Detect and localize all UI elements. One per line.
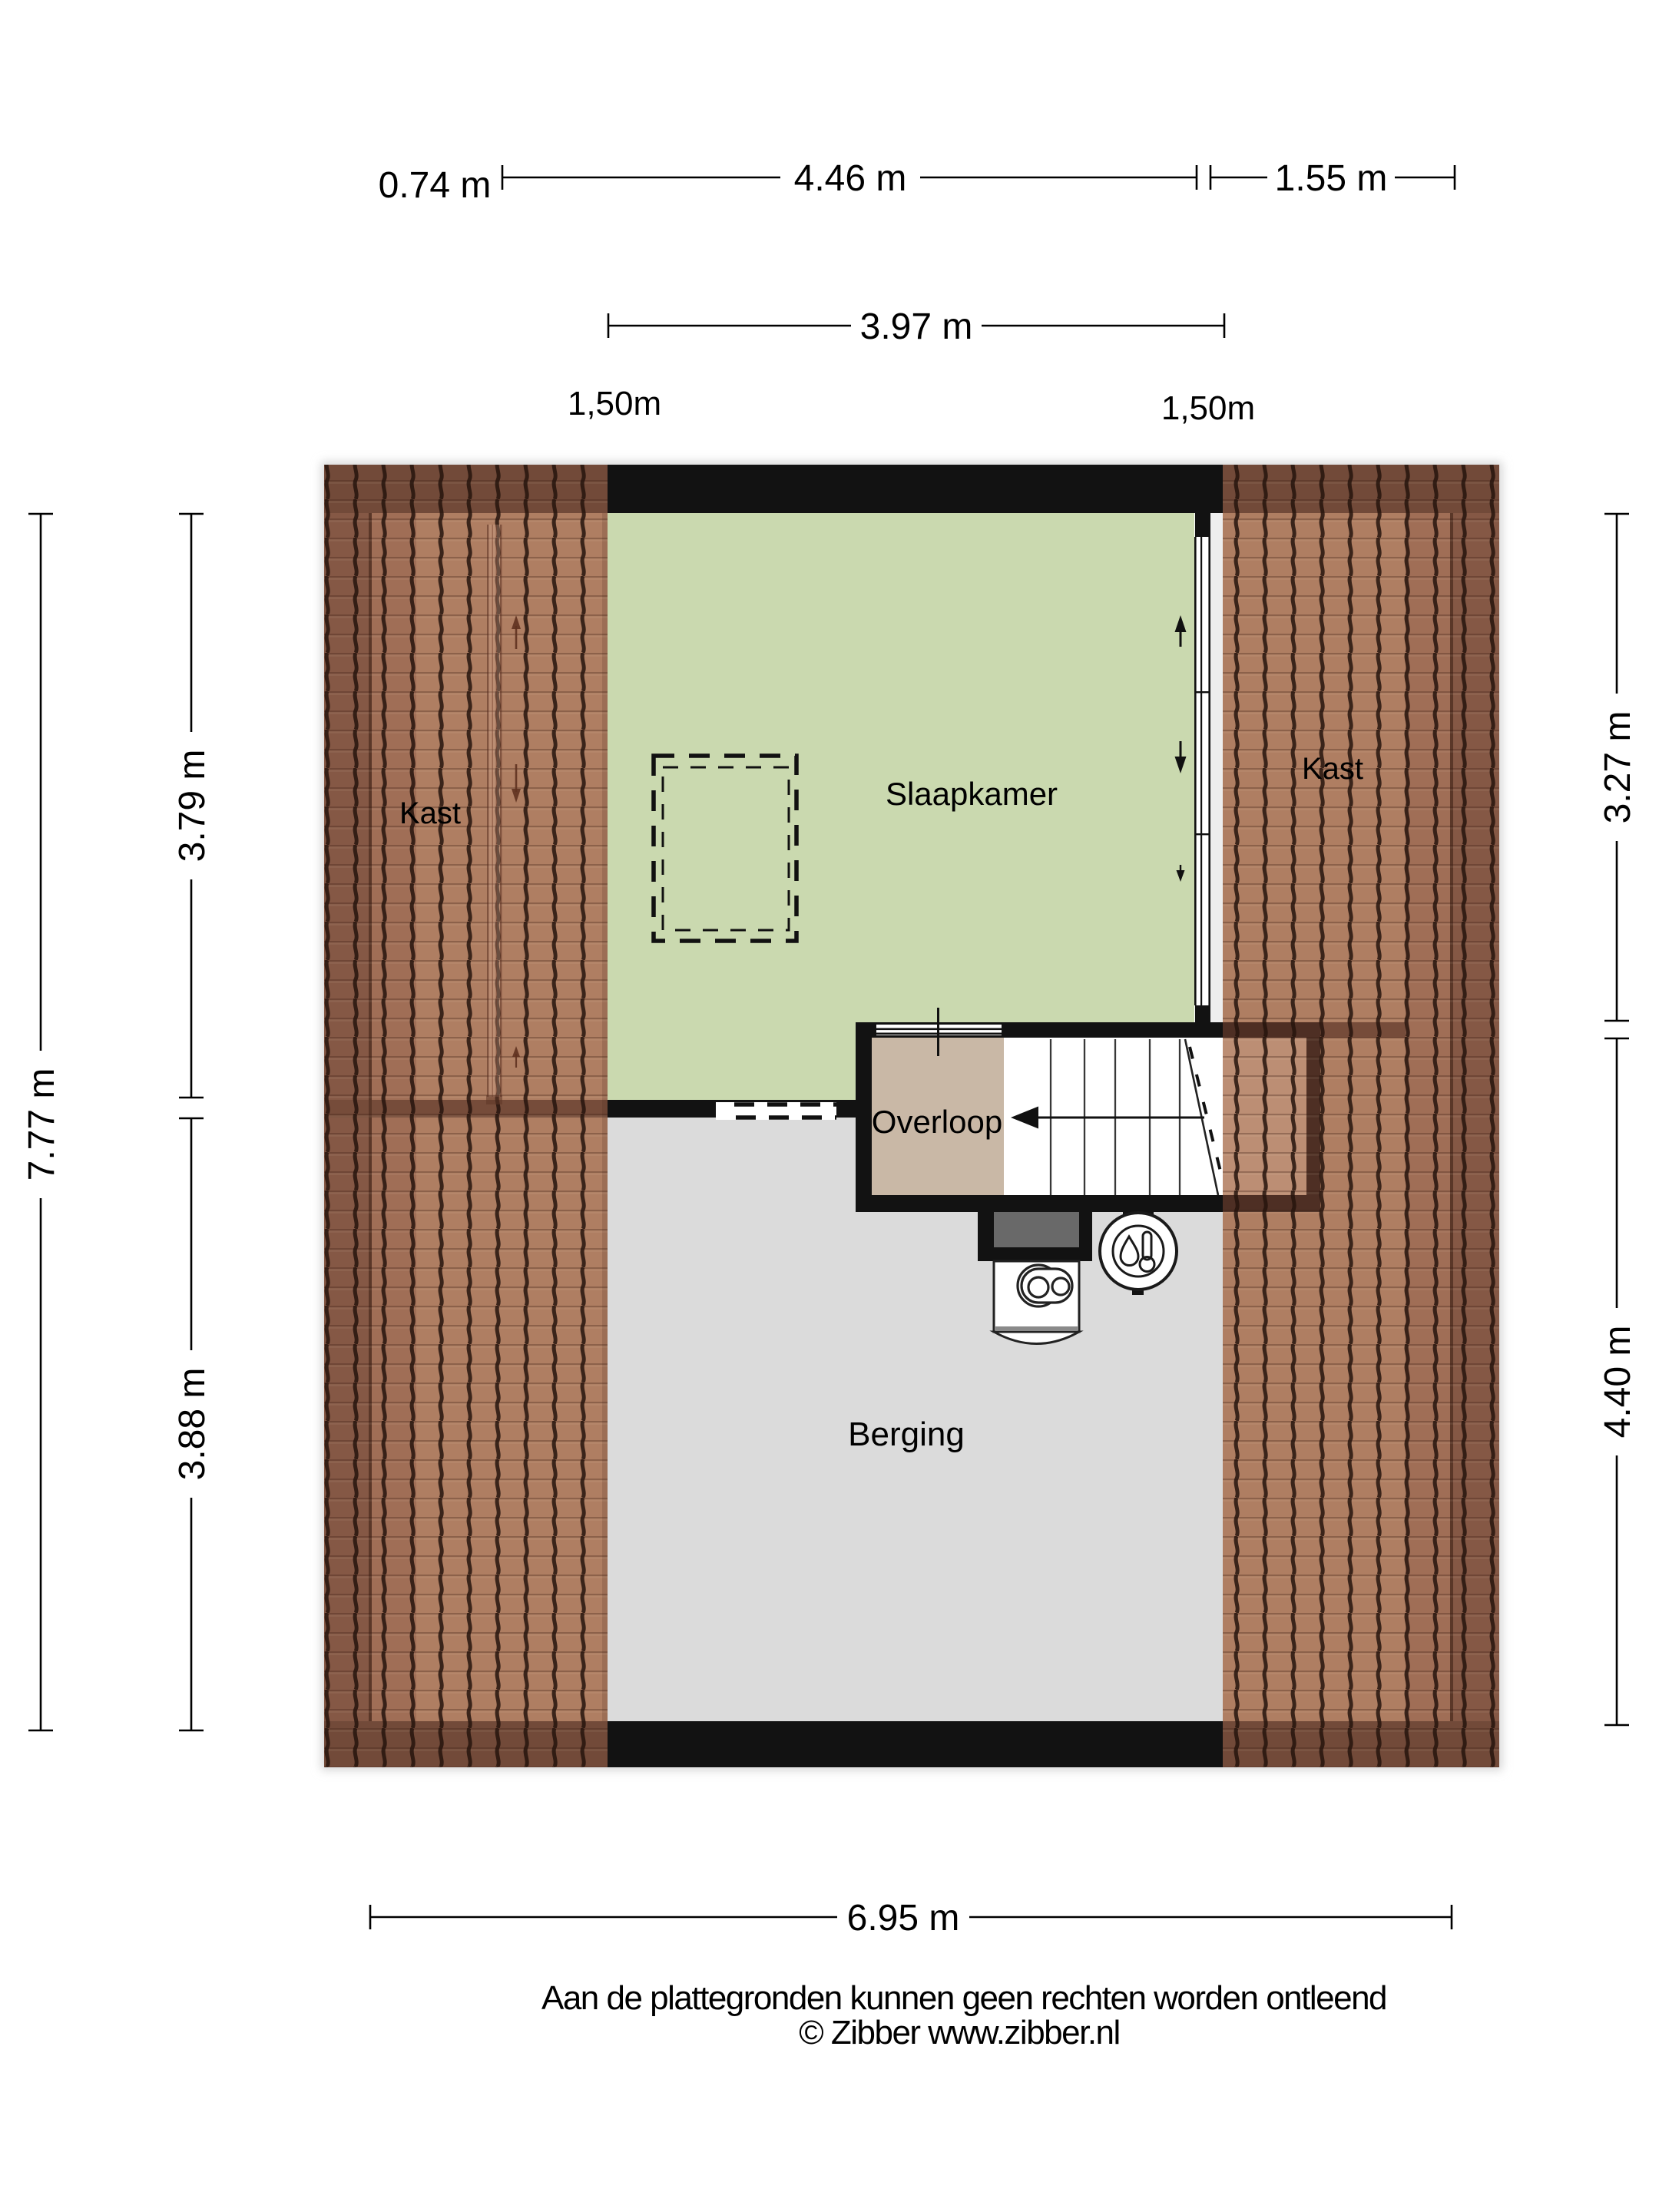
svg-text:1,50m: 1,50m <box>568 385 661 422</box>
svg-text:Slaapkamer: Slaapkamer <box>886 776 1058 812</box>
svg-text:3.88 m: 3.88 m <box>172 1368 213 1481</box>
svg-text:4.46 m: 4.46 m <box>794 158 907 199</box>
svg-text:4.40 m: 4.40 m <box>1598 1326 1638 1439</box>
svg-text:3.27 m: 3.27 m <box>1598 711 1638 824</box>
svg-text:3.97 m: 3.97 m <box>860 306 973 347</box>
svg-text:Overloop: Overloop <box>872 1104 1002 1140</box>
svg-text:© Zibber www.zibber.nl: © Zibber www.zibber.nl <box>799 2014 1120 2051</box>
svg-text:3.79 m: 3.79 m <box>172 750 213 863</box>
svg-text:Kast: Kast <box>399 796 461 830</box>
svg-text:6.95 m: 6.95 m <box>847 1898 960 1939</box>
svg-text:Kast: Kast <box>1302 752 1363 786</box>
svg-text:1.55 m: 1.55 m <box>1275 158 1388 199</box>
svg-text:0.74 m: 0.74 m <box>379 165 492 206</box>
svg-text:1,50m: 1,50m <box>1161 389 1255 427</box>
svg-text:Berging: Berging <box>848 1416 965 1453</box>
svg-text:7.77 m: 7.77 m <box>22 1068 62 1181</box>
svg-text:Aan de plattegronden kunnen ge: Aan de plattegronden kunnen geen rechten… <box>541 1979 1386 2017</box>
